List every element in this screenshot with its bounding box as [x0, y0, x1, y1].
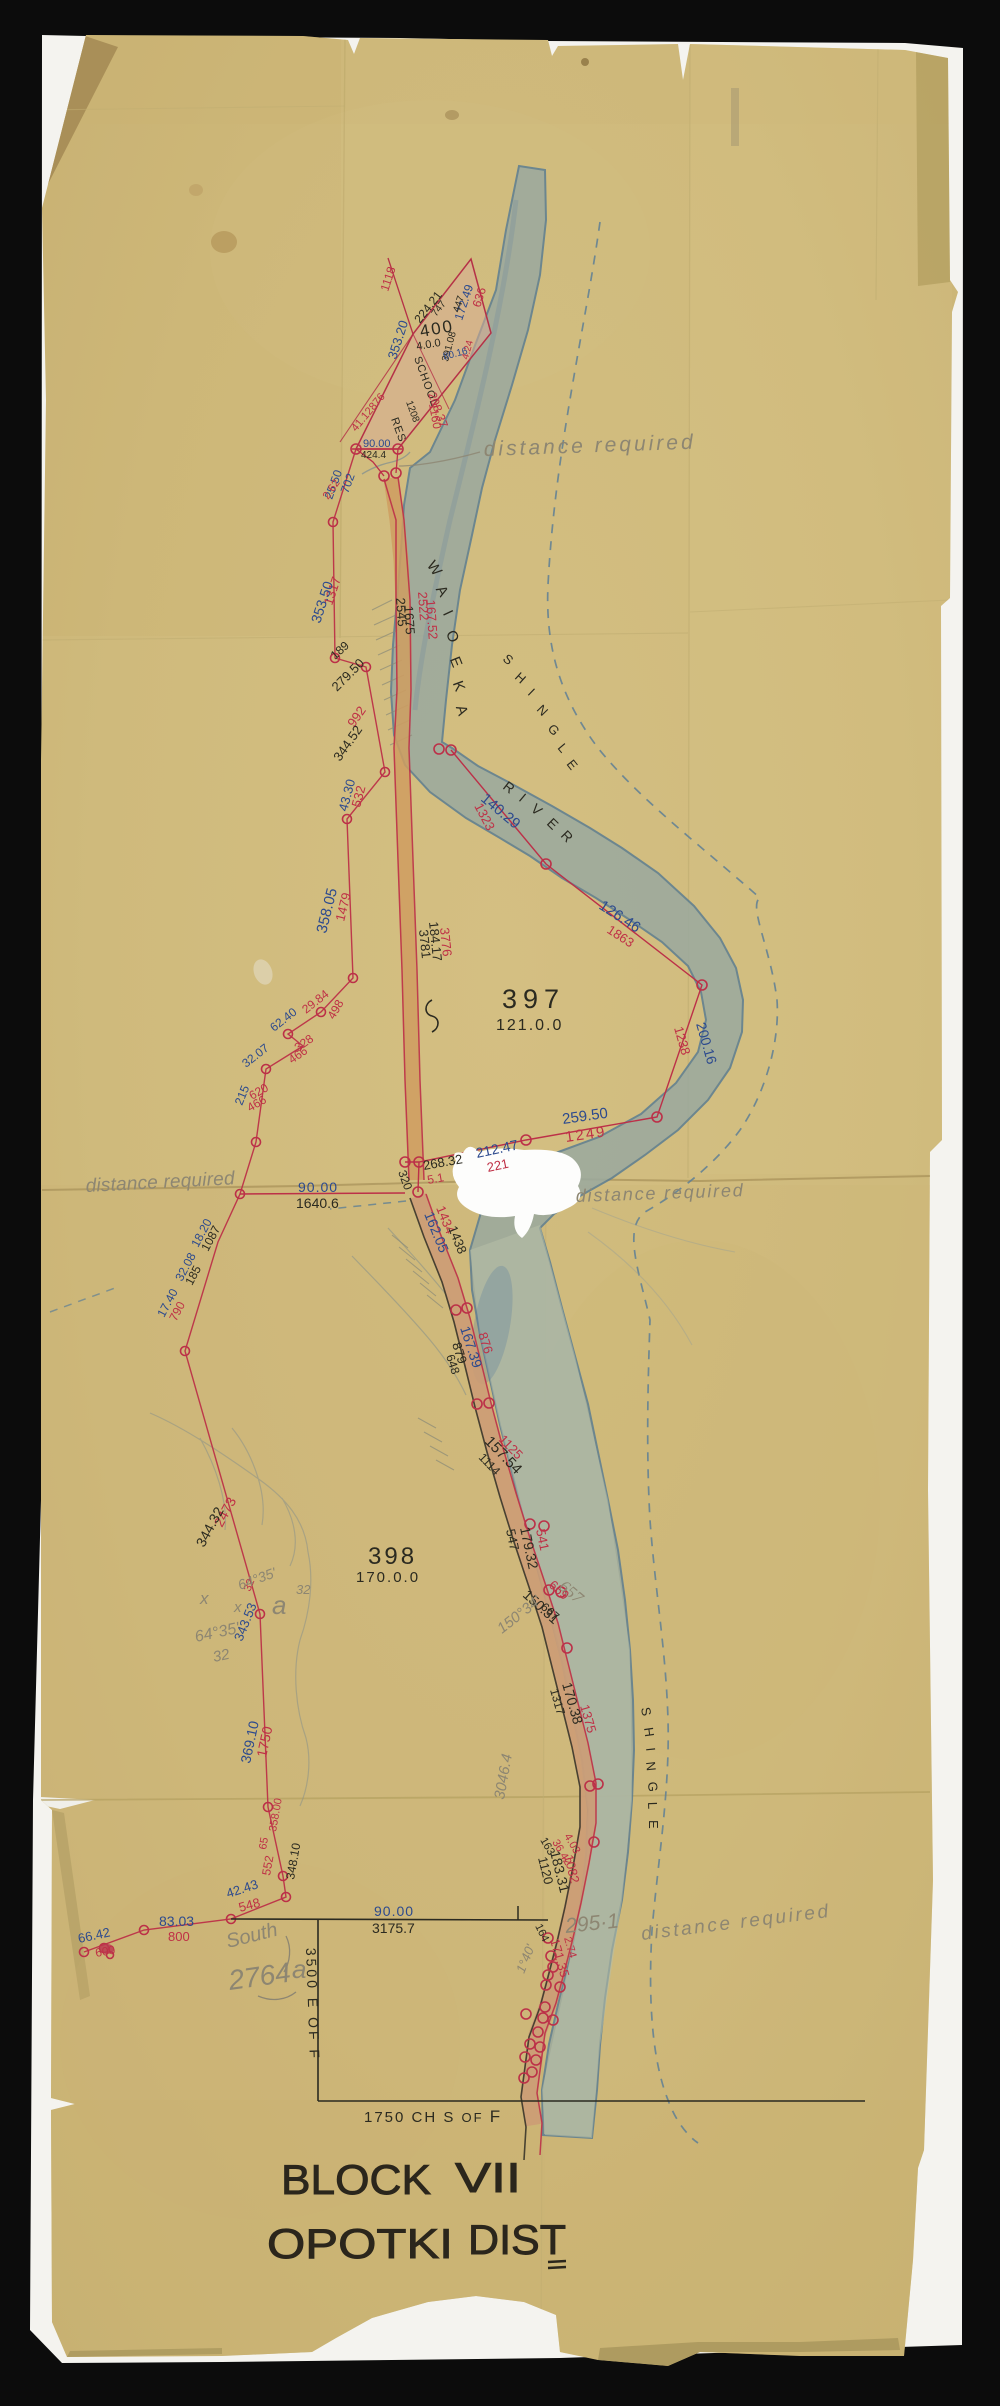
- svg-text:90.00: 90.00: [298, 1179, 338, 1195]
- svg-text:N: N: [643, 1761, 659, 1772]
- svg-text:1675: 1675: [401, 605, 418, 635]
- svg-text:65: 65: [257, 1836, 271, 1850]
- svg-text:3781: 3781: [416, 929, 434, 959]
- svg-text:424.4: 424.4: [361, 450, 386, 461]
- svg-text:DIST: DIST: [468, 2216, 566, 2263]
- svg-text:E: E: [646, 1820, 661, 1829]
- svg-text:170.0.0: 170.0.0: [356, 1569, 420, 1586]
- svg-text:a: a: [292, 1954, 306, 1984]
- svg-text:397: 397: [502, 984, 565, 1014]
- svg-text:a: a: [272, 1590, 286, 1620]
- svg-text:121.0.0: 121.0.0: [496, 1017, 563, 1034]
- svg-text:167.52: 167.52: [423, 599, 441, 640]
- svg-text:90.00: 90.00: [363, 438, 391, 450]
- svg-text:1640.6: 1640.6: [296, 1195, 339, 1211]
- svg-text:3175.7: 3175.7: [372, 1920, 415, 1936]
- svg-text:5.1: 5.1: [426, 1170, 445, 1187]
- svg-text:OPOTKI: OPOTKI: [267, 2220, 453, 2267]
- svg-text:90.00: 90.00: [374, 1903, 414, 1919]
- svg-text:L: L: [645, 1802, 660, 1810]
- svg-text:G: G: [645, 1781, 661, 1792]
- svg-text:VII: VII: [455, 2154, 521, 2201]
- svg-text:800: 800: [168, 1929, 190, 1944]
- svg-text:1750 CH S OF F: 1750 CH S OF F: [364, 2107, 502, 2126]
- svg-text:x: x: [199, 1589, 209, 1608]
- svg-text:BLOCK: BLOCK: [281, 2156, 431, 2203]
- svg-text:x: x: [233, 1599, 242, 1616]
- svg-text:32: 32: [296, 1582, 311, 1597]
- svg-text:83.03: 83.03: [159, 1913, 194, 1929]
- svg-text:398: 398: [368, 1543, 417, 1570]
